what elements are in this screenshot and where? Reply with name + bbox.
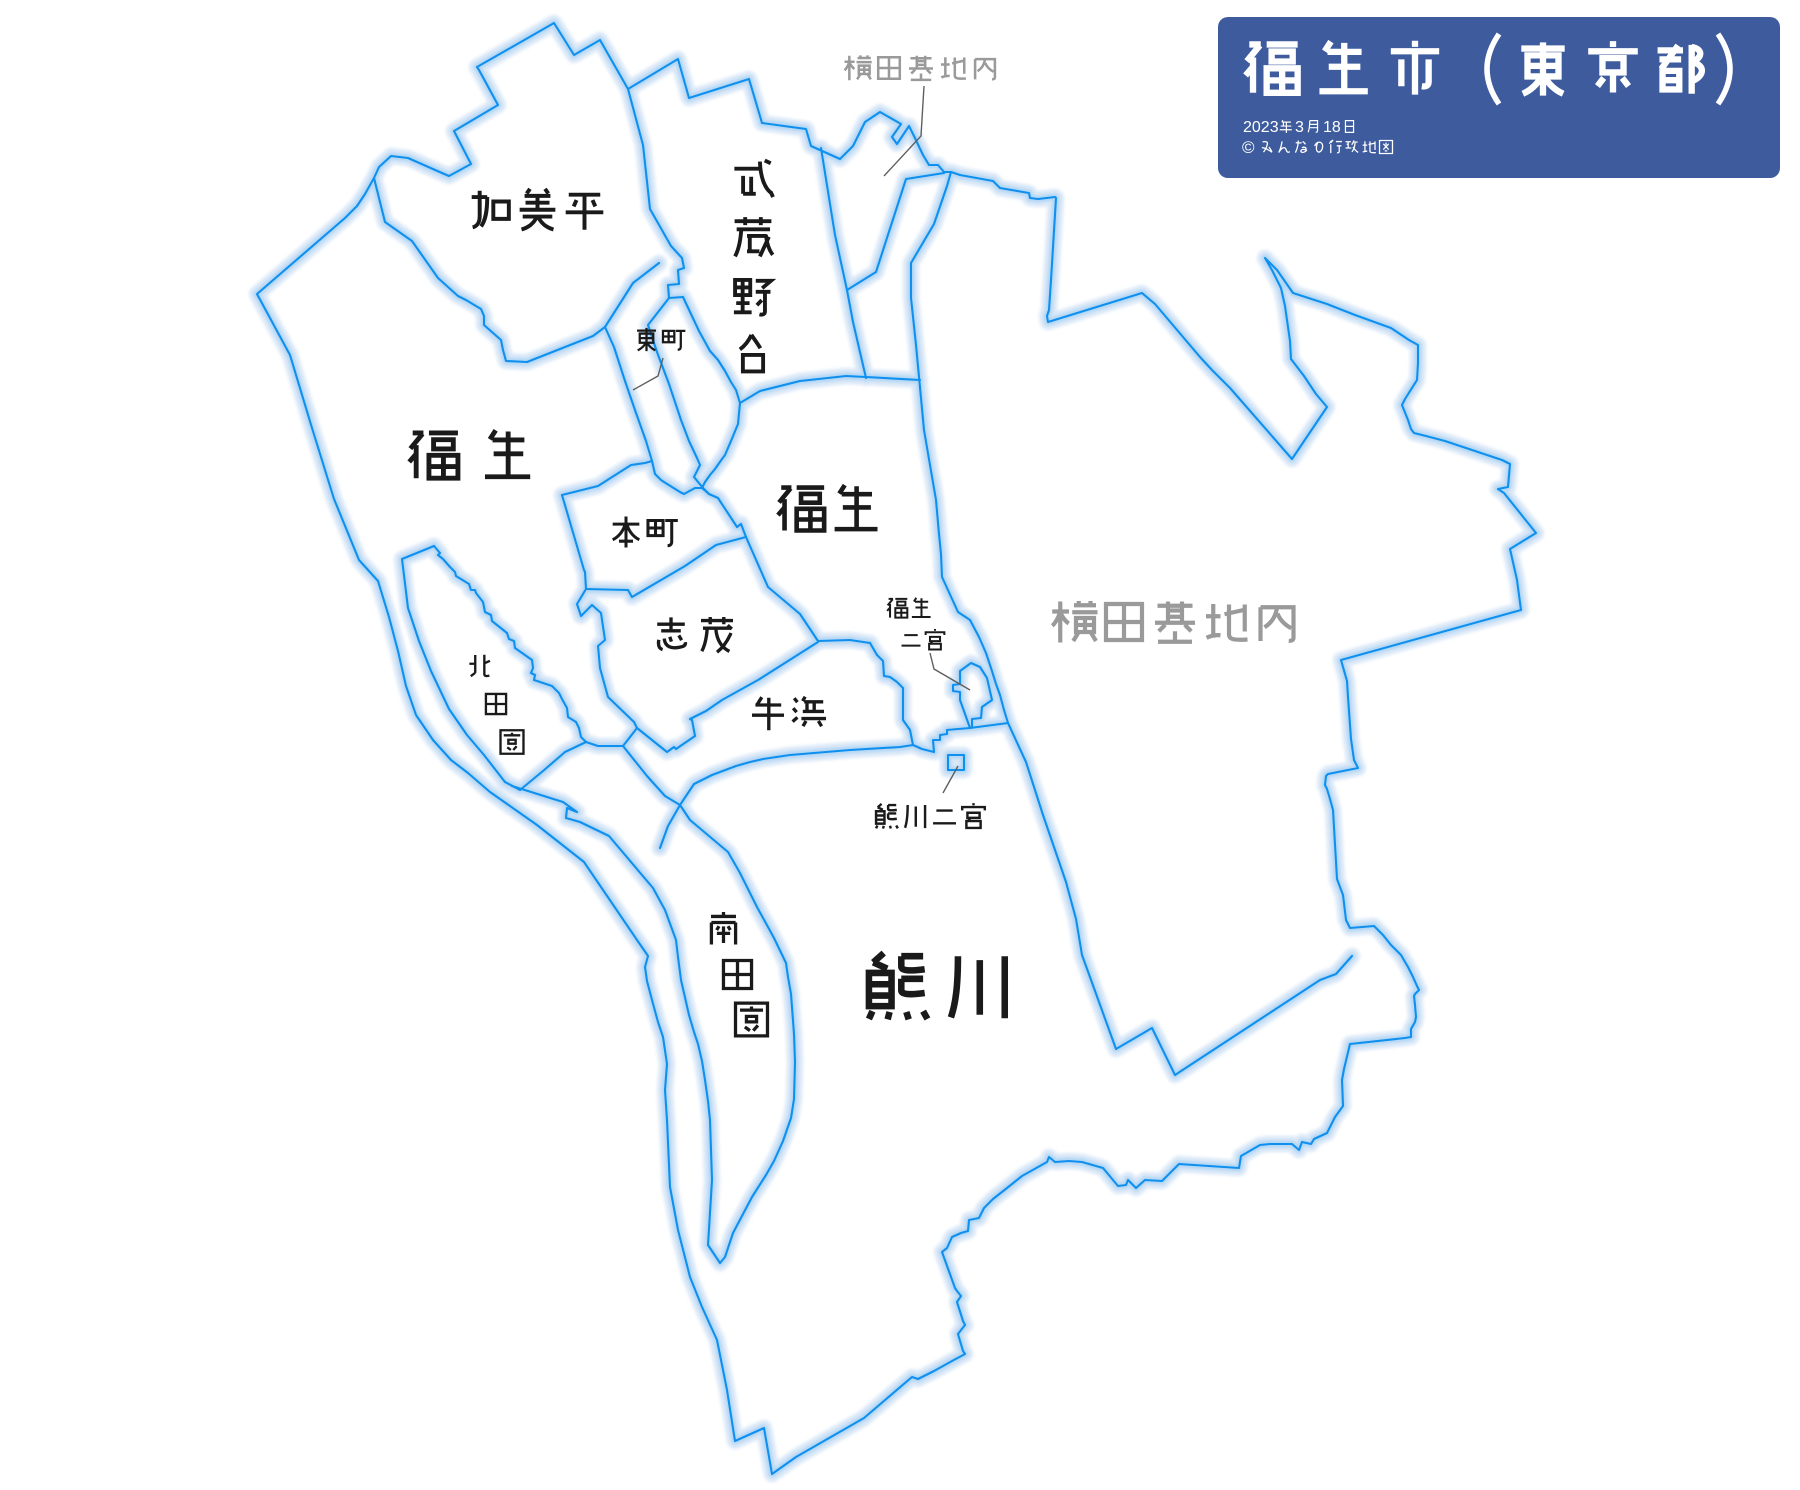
svg-text:2023: 2023 <box>1243 119 1279 136</box>
svg-text:3: 3 <box>1295 119 1304 136</box>
svg-text:18: 18 <box>1323 119 1341 136</box>
svg-text:©: © <box>1242 138 1255 157</box>
